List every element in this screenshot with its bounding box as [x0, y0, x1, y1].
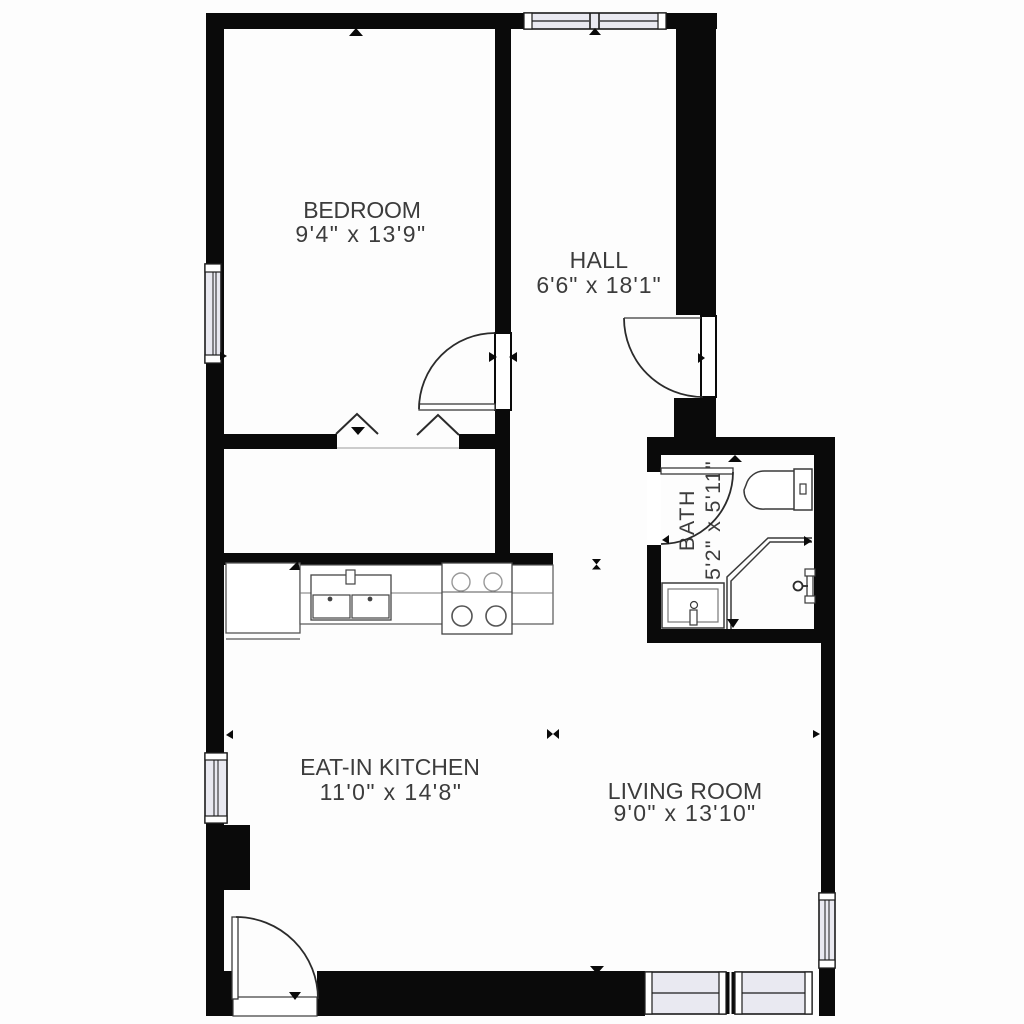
svg-text:9'0" x 13'10": 9'0" x 13'10": [613, 800, 756, 826]
svg-text:BEDROOM: BEDROOM: [303, 197, 420, 223]
svg-text:HALL: HALL: [570, 247, 629, 273]
svg-text:9'4" x 13'9": 9'4" x 13'9": [295, 221, 426, 247]
svg-text:11'0" x 14'8": 11'0" x 14'8": [320, 779, 463, 805]
svg-text:5'2" x 5'11": 5'2" x 5'11": [701, 460, 725, 580]
svg-text:EAT-IN KITCHEN: EAT-IN KITCHEN: [300, 754, 480, 780]
svg-text:6'6" x 18'1": 6'6" x 18'1": [536, 272, 661, 298]
